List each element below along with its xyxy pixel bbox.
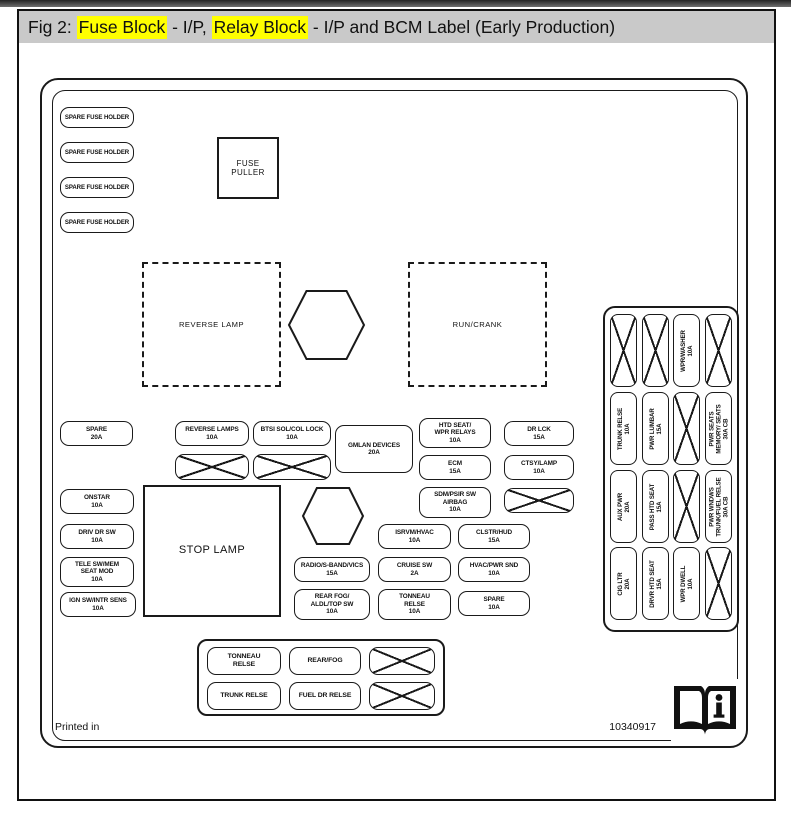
label: HVAC/PWR SND [470, 562, 518, 569]
fuse-htd-seat: HTD SEAT/WPR RELAYS10A [419, 418, 491, 448]
label: RUN/CRANK [453, 321, 503, 328]
label: TONNEAU [399, 593, 430, 600]
vertical-crossed-out-slot [705, 314, 732, 387]
label: DRIV DR SW [78, 529, 115, 536]
vertical-label: DRVR HTD SEAT15A [649, 550, 663, 618]
part-number: 10340917 [606, 721, 656, 733]
label: ECM [448, 460, 462, 467]
label: 15A [326, 570, 337, 577]
vertical-label: CIG LTR20A [617, 550, 631, 618]
vertical-label: WPR DWELL10A [680, 550, 694, 618]
label: 10A [624, 395, 631, 463]
label: REAR/FOG [307, 657, 342, 665]
label: 20A [624, 473, 631, 541]
label: ALDL/TOP SW [311, 601, 354, 608]
label: SPARE FUSE HOLDER [65, 149, 129, 156]
vertical-fuse-pass-htd-seat: PASS HTD SEAT15A [642, 470, 669, 543]
vertical-fuse-pwr-lumbar: PWR LUMBAR15A [642, 392, 669, 465]
crossed-out-slot [504, 488, 574, 513]
label: 10A [91, 576, 102, 583]
crossed-out-slot [253, 454, 331, 480]
label: RELSE [233, 661, 255, 669]
vertical-label: PWR WNDWSTRUNK/FUEL RELSE30A CB [708, 473, 729, 541]
label: PWR LUMBAR [649, 395, 656, 463]
hexagon-bolt [288, 290, 365, 360]
label: RADIO/S-BAND/VICS [301, 562, 363, 569]
vertical-crossed-out-slot [705, 547, 732, 620]
label: STOP LAMP [179, 546, 245, 556]
vertical-fuse-cig-ltr: CIG LTR20A [610, 547, 637, 620]
label: 15A [449, 468, 460, 475]
label: PWR WNDWS [708, 473, 715, 541]
label: CTSY/LAMP [521, 460, 557, 467]
vertical-crossed-out-slot [673, 470, 700, 543]
label: SPARE [483, 596, 504, 603]
spare-fuse-holder: SPARE FUSE HOLDER [60, 177, 134, 198]
fuse-reverse-lamps: REVERSE LAMPS10A [175, 421, 249, 446]
label: 15A [656, 395, 663, 463]
label: TONNEAU [228, 653, 261, 661]
fuse-driv-dr-sw: DRIV DR SW10A [60, 524, 134, 549]
vertical-label: PWR SEATSMEMORY/ SEATS30A CB [708, 395, 729, 463]
label: IGN SW/INTR SENS [69, 597, 127, 604]
stop-lamp-box: STOP LAMP [143, 485, 281, 617]
label: 10A [687, 550, 694, 618]
label: 30A CB [722, 395, 729, 463]
fuse-ctsy-lamp: CTSY/LAMP10A [504, 455, 574, 480]
label: TRUNK RELSE [617, 395, 624, 463]
label: CLSTR/HUD [476, 529, 512, 536]
dashed-cavity-reverse-lamp: REVERSE LAMP [142, 262, 281, 387]
label: REVERSE LAMP [179, 321, 244, 328]
relay-tonneau: TONNEAURELSE [207, 647, 281, 675]
fuse-sdm-psir-sw: SDM/PSIR SWAIRBAG10A [419, 487, 491, 518]
label: TRUNK RELSE [220, 692, 267, 700]
label: ONSTAR [84, 494, 110, 501]
label: HTD SEAT/ [439, 422, 471, 429]
label: DRVR HTD SEAT [649, 550, 656, 618]
owner-manual-info-book-icon [671, 679, 739, 741]
printed-in-text: Printed in [55, 721, 99, 733]
label: 10A [449, 506, 460, 513]
vertical-fuse-wpr-washer: WPR/WASHER10A [673, 314, 700, 387]
fuse-onstar: ONSTAR10A [60, 489, 134, 514]
label: 30A CB [722, 473, 729, 541]
fuse-hvac-pwr-snd: HVAC/PWR SND10A [458, 557, 530, 582]
fuse-clstr-hud: CLSTR/HUD15A [458, 524, 530, 549]
label: SDM/PSIR SW [434, 491, 476, 498]
label: AIRBAG [443, 499, 468, 506]
crossed-out-slot [369, 682, 435, 710]
vertical-fuse-trunk-relse: TRUNK RELSE10A [610, 392, 637, 465]
label: WPR/WASHER [680, 317, 687, 385]
label: 10A [409, 537, 420, 544]
page: Fig 2: Fuse Block - I/P, Relay Block - I… [0, 0, 791, 813]
fuse-rear-fog: REAR FOG/ALDL/TOP SW10A [294, 589, 370, 620]
vertical-fuse-pwr-seats: PWR SEATSMEMORY/ SEATS30A CB [705, 392, 732, 465]
fuse-tele-sw-mem: TELE SW/MEMSEAT MOD10A [60, 557, 134, 587]
vertical-label: PWR LUMBAR15A [649, 395, 663, 463]
label: 10A [449, 437, 460, 444]
label: MEMORY/ SEATS [715, 395, 722, 463]
label: SPARE FUSE HOLDER [65, 184, 129, 191]
label: 10A [92, 605, 103, 612]
label: 10A [91, 537, 102, 544]
label: 10A [326, 608, 337, 615]
label: GMLAN DEVICES [348, 442, 400, 449]
vertical-label: WPR/WASHER10A [680, 317, 694, 385]
hexagon-bolt [302, 487, 364, 545]
label: 10A [533, 468, 544, 475]
fuse-ign-sw-intr-sens: IGN SW/INTR SENS10A [60, 592, 136, 617]
label: 10A [488, 604, 499, 611]
label: 15A [656, 473, 663, 541]
vertical-crossed-out-slot [642, 314, 669, 387]
label: REAR FOG/ [315, 593, 350, 600]
label: DR LCK [527, 426, 551, 433]
fuse-btsi-sol-col-lock: BTSI SOL/COL LOCK10A [253, 421, 331, 446]
relay-fuel-dr-relse: FUEL DR RELSE [289, 682, 361, 710]
crossed-out-slot [369, 647, 435, 675]
relay-rear-fog: REAR/FOG [289, 647, 361, 675]
fuse-spare: SPARE20A [60, 421, 133, 446]
spare-fuse-holder: SPARE FUSE HOLDER [60, 107, 134, 128]
label: 15A [488, 537, 499, 544]
fuse-radio-s-band-vics: RADIO/S-BAND/VICS15A [294, 557, 370, 582]
label: CIG LTR [617, 550, 624, 618]
crossed-out-slot [175, 454, 249, 480]
label: 15A [533, 434, 544, 441]
label: FUSE [237, 159, 260, 169]
fuse-spare: SPARE10A [458, 591, 530, 616]
fuse-gmlan-devices: GMLAN DEVICES20A [335, 425, 413, 473]
label: WPR RELAYS [434, 429, 475, 436]
label: SEAT MOD [81, 568, 113, 575]
label: 20A [91, 434, 102, 441]
vertical-fuse-aux-pwr: AUX PWR20A [610, 470, 637, 543]
label: 15A [656, 550, 663, 618]
vertical-label: AUX PWR20A [617, 473, 631, 541]
fuse-ecm: ECM15A [419, 455, 491, 480]
label: SPARE FUSE HOLDER [65, 219, 129, 226]
label: REVERSE LAMPS [185, 426, 238, 433]
vertical-crossed-out-slot [673, 392, 700, 465]
fuse-isrvm-hvac: ISRVM/HVAC10A [378, 524, 451, 549]
fuse-dr-lck: DR LCK15A [504, 421, 574, 446]
vertical-crossed-out-slot [610, 314, 637, 387]
relay-trunk-relse: TRUNK RELSE [207, 682, 281, 710]
vertical-fuse-pwr-wndws: PWR WNDWSTRUNK/FUEL RELSE30A CB [705, 470, 732, 543]
label: WPR DWELL [680, 550, 687, 618]
label: 10A [687, 317, 694, 385]
label: FUEL DR RELSE [299, 692, 352, 700]
fuse-puller: FUSEPULLER [217, 137, 279, 199]
label: 10A [206, 434, 217, 441]
label: 2A [411, 570, 419, 577]
label: 20A [624, 550, 631, 618]
vertical-fuse-drvr-htd-seat: DRVR HTD SEAT15A [642, 547, 669, 620]
vertical-label: PASS HTD SEAT15A [649, 473, 663, 541]
vertical-label: TRUNK RELSE10A [617, 395, 631, 463]
label: RELSE [404, 601, 425, 608]
label: ISRVM/HVAC [395, 529, 434, 536]
label: SPARE [86, 426, 107, 433]
label: CRUISE SW [397, 562, 432, 569]
label: AUX PWR [617, 473, 624, 541]
label: TRUNK/FUEL RELSE [715, 473, 722, 541]
label: 10A [91, 502, 102, 509]
label: 20A [368, 449, 379, 456]
label: PWR SEATS [708, 395, 715, 463]
label: 10A [409, 608, 420, 615]
label: TELE SW/MEM [75, 561, 119, 568]
label: PASS HTD SEAT [649, 473, 656, 541]
fuse-cruise-sw: CRUISE SW2A [378, 557, 451, 582]
label: SPARE FUSE HOLDER [65, 114, 129, 121]
spare-fuse-holder: SPARE FUSE HOLDER [60, 142, 134, 163]
fuse-tonneau: TONNEAURELSE10A [378, 589, 451, 620]
dashed-cavity-run-crank: RUN/CRANK [408, 262, 547, 387]
label: PULLER [231, 168, 265, 178]
label: 10A [286, 434, 297, 441]
spare-fuse-holder: SPARE FUSE HOLDER [60, 212, 134, 233]
label: BTSI SOL/COL LOCK [261, 426, 324, 433]
label: 10A [488, 570, 499, 577]
vertical-fuse-wpr-dwell: WPR DWELL10A [673, 547, 700, 620]
